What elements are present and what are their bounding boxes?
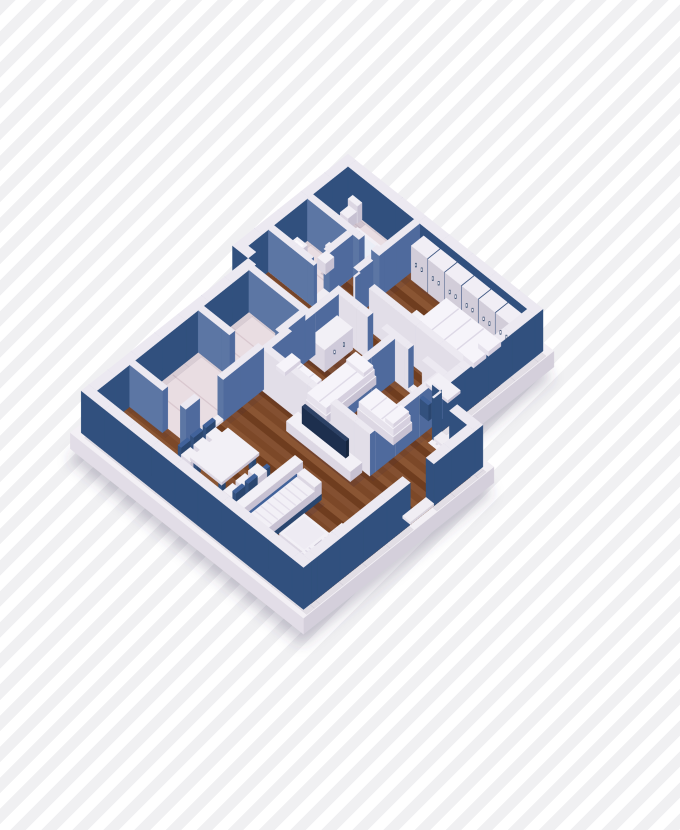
floorplan-screenshot bbox=[0, 0, 680, 830]
floorplan-3d-render bbox=[0, 0, 680, 830]
walls-and-furniture bbox=[81, 154, 543, 610]
